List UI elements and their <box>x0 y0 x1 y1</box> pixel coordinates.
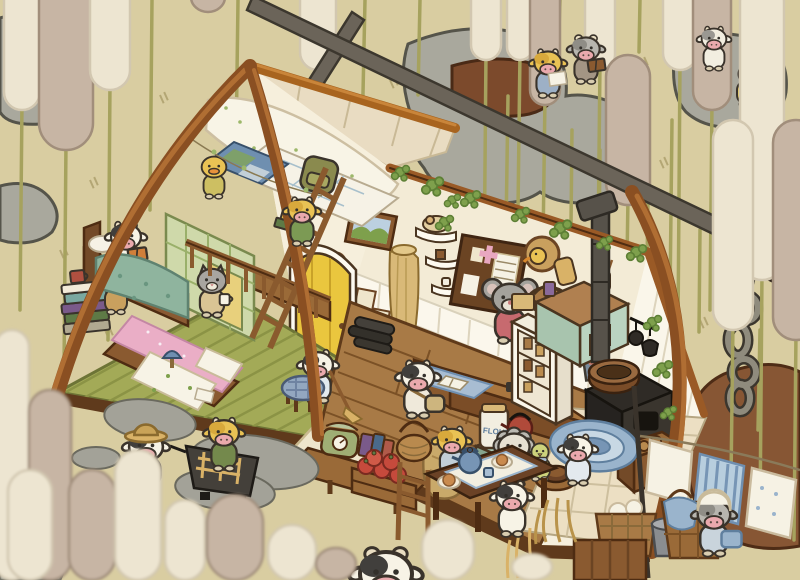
reading-cow-gray-book <box>587 58 605 72</box>
cattail <box>512 554 552 580</box>
jam-jar <box>544 282 555 296</box>
satchel-bag <box>426 396 445 412</box>
cattail <box>422 520 474 580</box>
gray-cat-mug <box>220 294 233 305</box>
loft-duck[interactable] <box>202 157 227 199</box>
cattail-stem <box>639 0 640 52</box>
cattail <box>165 500 205 580</box>
cattail <box>268 525 316 580</box>
cattail <box>115 450 161 580</box>
cattail <box>8 470 52 580</box>
reading-cow-yellow-paper <box>548 71 566 86</box>
game-scene: FLOUR <box>0 0 800 580</box>
mug[interactable] <box>484 468 493 477</box>
towel-white[interactable] <box>646 440 692 504</box>
scene-canvas: FLOUR <box>0 0 800 580</box>
towel-dotted[interactable] <box>746 468 796 538</box>
storage-crate[interactable] <box>574 540 646 580</box>
cattail <box>69 470 115 580</box>
cattail <box>207 495 263 580</box>
cattail <box>316 548 356 580</box>
laundry-cow-cloth <box>722 531 742 547</box>
cattail-stem <box>699 230 700 332</box>
